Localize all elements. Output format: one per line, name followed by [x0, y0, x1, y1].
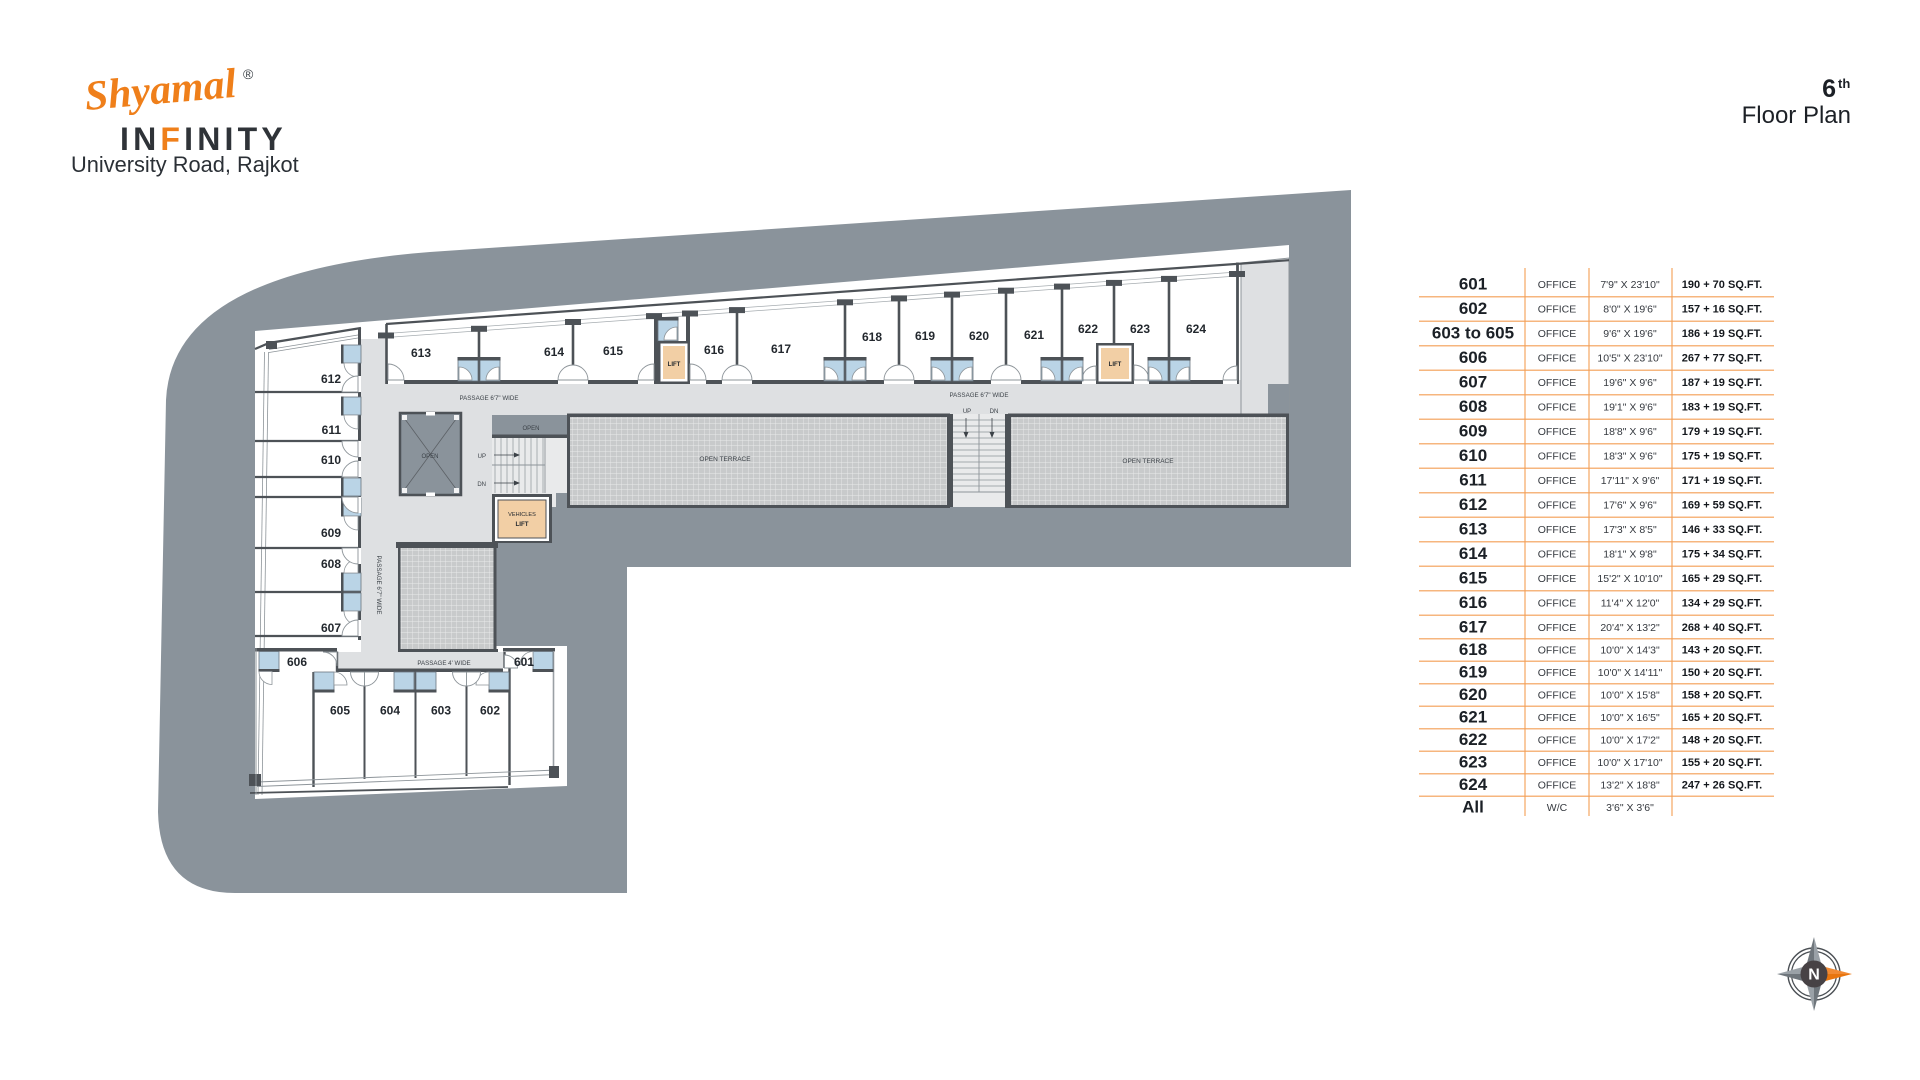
svg-text:University Road, Rajkot: University Road, Rajkot — [71, 152, 299, 177]
svg-text:165 + 29 SQ.FT.: 165 + 29 SQ.FT. — [1682, 573, 1762, 585]
svg-text:175 + 19 SQ.FT.: 175 + 19 SQ.FT. — [1682, 451, 1762, 463]
svg-text:624: 624 — [1459, 775, 1488, 794]
svg-text:603 to 605: 603 to 605 — [1432, 324, 1514, 343]
svg-text:605: 605 — [330, 704, 350, 718]
svg-text:OFFICE: OFFICE — [1538, 426, 1577, 438]
svg-text:OPEN: OPEN — [421, 454, 438, 460]
svg-text:OPEN: OPEN — [522, 426, 539, 432]
svg-text:10'5" X 23'10": 10'5" X 23'10" — [1597, 353, 1662, 365]
svg-text:PASSAGE 6'7" WIDE: PASSAGE 6'7" WIDE — [375, 556, 382, 615]
svg-text:OFFICE: OFFICE — [1538, 328, 1577, 340]
svg-text:OFFICE: OFFICE — [1538, 353, 1577, 365]
svg-text:UP: UP — [478, 454, 486, 460]
svg-text:150 + 20 SQ.FT.: 150 + 20 SQ.FT. — [1682, 667, 1762, 679]
svg-text:LIFT: LIFT — [1109, 362, 1122, 368]
svg-text:N: N — [1808, 967, 1820, 984]
svg-text:OFFICE: OFFICE — [1538, 735, 1577, 747]
svg-text:8'0" X 19'6": 8'0" X 19'6" — [1603, 304, 1657, 316]
svg-text:609: 609 — [321, 526, 341, 540]
svg-text:601: 601 — [1459, 275, 1487, 294]
svg-text:612: 612 — [1459, 495, 1487, 514]
svg-text:18'1" X 9'8": 18'1" X 9'8" — [1603, 549, 1657, 561]
svg-text:OFFICE: OFFICE — [1538, 690, 1577, 702]
svg-text:OFFICE: OFFICE — [1538, 757, 1577, 769]
svg-text:10'0" X 14'11": 10'0" X 14'11" — [1598, 667, 1663, 679]
svg-text:PASSAGE 4' WIDE: PASSAGE 4' WIDE — [417, 660, 470, 667]
svg-text:17'11" X 9'6": 17'11" X 9'6" — [1601, 475, 1660, 487]
svg-text:607: 607 — [321, 621, 341, 635]
svg-text:19'6" X 9'6": 19'6" X 9'6" — [1603, 377, 1657, 389]
svg-text:157 + 16 SQ.FT.: 157 + 16 SQ.FT. — [1682, 304, 1762, 316]
svg-text:183 + 19 SQ.FT.: 183 + 19 SQ.FT. — [1682, 402, 1762, 414]
svg-text:10'0" X 16'5": 10'0" X 16'5" — [1600, 712, 1660, 724]
svg-text:OFFICE: OFFICE — [1538, 549, 1577, 561]
svg-text:617: 617 — [771, 342, 791, 356]
svg-text:609: 609 — [1459, 422, 1487, 441]
svg-text:10'0" X 17'2": 10'0" X 17'2" — [1600, 735, 1660, 747]
svg-text:®: ® — [243, 66, 254, 82]
svg-text:155 + 20 SQ.FT.: 155 + 20 SQ.FT. — [1682, 757, 1762, 769]
svg-text:DN: DN — [477, 482, 486, 488]
svg-text:DN: DN — [990, 409, 999, 415]
svg-text:612: 612 — [321, 372, 341, 386]
svg-text:OFFICE: OFFICE — [1538, 573, 1577, 585]
svg-text:604: 604 — [380, 704, 400, 718]
svg-text:UP: UP — [963, 409, 971, 415]
svg-text:190 + 70 SQ.FT.: 190 + 70 SQ.FT. — [1682, 279, 1762, 291]
svg-text:17'6" X 9'6": 17'6" X 9'6" — [1603, 500, 1657, 512]
svg-text:OFFICE: OFFICE — [1538, 598, 1577, 610]
svg-text:620: 620 — [1459, 685, 1487, 704]
svg-text:619: 619 — [1459, 663, 1487, 682]
svg-text:18'3" X 9'6": 18'3" X 9'6" — [1603, 451, 1657, 463]
svg-text:169 + 59 SQ.FT.: 169 + 59 SQ.FT. — [1682, 500, 1762, 512]
svg-text:W/C: W/C — [1547, 802, 1568, 814]
svg-text:171 + 19 SQ.FT.: 171 + 19 SQ.FT. — [1682, 475, 1762, 487]
svg-text:613: 613 — [411, 346, 431, 360]
svg-text:OFFICE: OFFICE — [1538, 304, 1577, 316]
svg-text:13'2" X 18'8": 13'2" X 18'8" — [1600, 780, 1660, 792]
svg-text:616: 616 — [1459, 593, 1487, 612]
svg-text:614: 614 — [544, 345, 564, 359]
svg-text:268 + 40 SQ.FT.: 268 + 40 SQ.FT. — [1682, 622, 1762, 634]
svg-text:608: 608 — [1459, 397, 1487, 416]
svg-text:134 + 29 SQ.FT.: 134 + 29 SQ.FT. — [1682, 598, 1762, 610]
svg-text:624: 624 — [1186, 322, 1206, 336]
svg-text:616: 616 — [704, 343, 724, 357]
svg-text:618: 618 — [862, 330, 882, 344]
svg-text:OFFICE: OFFICE — [1538, 622, 1577, 634]
svg-text:OFFICE: OFFICE — [1538, 451, 1577, 463]
svg-text:10'0" X 17'10": 10'0" X 17'10" — [1597, 757, 1662, 769]
svg-text:611: 611 — [1459, 471, 1486, 490]
svg-text:610: 610 — [1459, 446, 1487, 465]
svg-text:620: 620 — [969, 329, 989, 343]
svg-text:OFFICE: OFFICE — [1538, 524, 1577, 536]
svg-text:158 + 20 SQ.FT.: 158 + 20 SQ.FT. — [1682, 690, 1762, 702]
svg-text:617: 617 — [1459, 618, 1487, 637]
svg-text:All: All — [1462, 798, 1484, 817]
svg-text:PASSAGE 6'7" WIDE: PASSAGE 6'7" WIDE — [950, 392, 1009, 399]
svg-text:OFFICE: OFFICE — [1538, 279, 1577, 291]
svg-text:606: 606 — [1459, 348, 1487, 367]
svg-text:622: 622 — [1459, 730, 1487, 749]
svg-text:175 + 34 SQ.FT.: 175 + 34 SQ.FT. — [1682, 549, 1762, 561]
svg-text:OFFICE: OFFICE — [1538, 377, 1577, 389]
svg-text:607: 607 — [1459, 373, 1487, 392]
svg-text:10'0" X 14'3": 10'0" X 14'3" — [1600, 645, 1660, 657]
svg-text:OFFICE: OFFICE — [1538, 475, 1577, 487]
svg-text:603: 603 — [431, 704, 451, 718]
svg-text:614: 614 — [1459, 544, 1488, 563]
svg-text:3'6" X 3'6": 3'6" X 3'6" — [1606, 802, 1654, 814]
svg-text:7'9" X 23'10": 7'9" X 23'10" — [1600, 279, 1660, 291]
svg-text:OPEN TERRACE: OPEN TERRACE — [699, 456, 751, 463]
svg-text:OFFICE: OFFICE — [1538, 500, 1577, 512]
svg-text:615: 615 — [1459, 569, 1487, 588]
svg-text:146 + 33 SQ.FT.: 146 + 33 SQ.FT. — [1682, 524, 1762, 536]
svg-text:606: 606 — [287, 655, 307, 669]
svg-text:6: 6 — [1822, 75, 1836, 103]
svg-text:17'3" X 8'5": 17'3" X 8'5" — [1603, 524, 1657, 536]
svg-text:11'4" X 12'0": 11'4" X 12'0" — [1601, 598, 1660, 610]
svg-text:15'2" X 10'10": 15'2" X 10'10" — [1597, 573, 1662, 585]
svg-text:OFFICE: OFFICE — [1538, 780, 1577, 792]
svg-text:618: 618 — [1459, 640, 1487, 659]
svg-text:623: 623 — [1130, 322, 1150, 336]
svg-text:608: 608 — [321, 557, 341, 571]
svg-text:601: 601 — [514, 655, 534, 669]
svg-text:621: 621 — [1459, 708, 1487, 727]
svg-text:613: 613 — [1459, 520, 1487, 539]
svg-text:187 + 19 SQ.FT.: 187 + 19 SQ.FT. — [1682, 377, 1762, 389]
svg-text:OFFICE: OFFICE — [1538, 667, 1577, 679]
svg-text:143 + 20 SQ.FT.: 143 + 20 SQ.FT. — [1682, 645, 1762, 657]
svg-text:OFFICE: OFFICE — [1538, 402, 1577, 414]
svg-text:621: 621 — [1024, 328, 1044, 342]
svg-text:LIFT: LIFT — [515, 521, 528, 528]
svg-text:LIFT: LIFT — [668, 362, 681, 368]
svg-text:622: 622 — [1078, 322, 1098, 336]
svg-text:602: 602 — [1459, 299, 1487, 318]
svg-text:267 + 77 SQ.FT.: 267 + 77 SQ.FT. — [1682, 353, 1762, 365]
svg-text:OFFICE: OFFICE — [1538, 645, 1577, 657]
svg-text:247 + 26 SQ.FT.: 247 + 26 SQ.FT. — [1682, 780, 1762, 792]
svg-text:10'0" X 15'8": 10'0" X 15'8" — [1600, 690, 1660, 702]
svg-text:th: th — [1838, 76, 1850, 91]
svg-text:9'6" X 19'6": 9'6" X 19'6" — [1603, 328, 1657, 340]
svg-text:OFFICE: OFFICE — [1538, 712, 1577, 724]
svg-text:179 + 19 SQ.FT.: 179 + 19 SQ.FT. — [1682, 426, 1762, 438]
svg-text:165 + 20 SQ.FT.: 165 + 20 SQ.FT. — [1682, 712, 1762, 724]
svg-text:19'1" X 9'6": 19'1" X 9'6" — [1603, 402, 1657, 414]
svg-text:148 + 20 SQ.FT.: 148 + 20 SQ.FT. — [1682, 735, 1762, 747]
svg-text:619: 619 — [915, 329, 935, 343]
svg-text:Floor Plan: Floor Plan — [1742, 102, 1851, 129]
svg-text:18'8" X 9'6": 18'8" X 9'6" — [1603, 426, 1657, 438]
svg-text:610: 610 — [321, 453, 341, 467]
svg-text:611: 611 — [322, 423, 342, 437]
svg-text:615: 615 — [603, 344, 623, 358]
svg-text:20'4" X 13'2": 20'4" X 13'2" — [1600, 622, 1660, 634]
svg-text:602: 602 — [480, 704, 500, 718]
svg-text:OPEN TERRACE: OPEN TERRACE — [1122, 458, 1174, 465]
svg-text:PASSAGE 6'7" WIDE: PASSAGE 6'7" WIDE — [460, 395, 519, 402]
svg-text:623: 623 — [1459, 753, 1487, 772]
svg-text:VEHICLES: VEHICLES — [508, 512, 536, 518]
svg-text:186 + 19 SQ.FT.: 186 + 19 SQ.FT. — [1682, 328, 1762, 340]
